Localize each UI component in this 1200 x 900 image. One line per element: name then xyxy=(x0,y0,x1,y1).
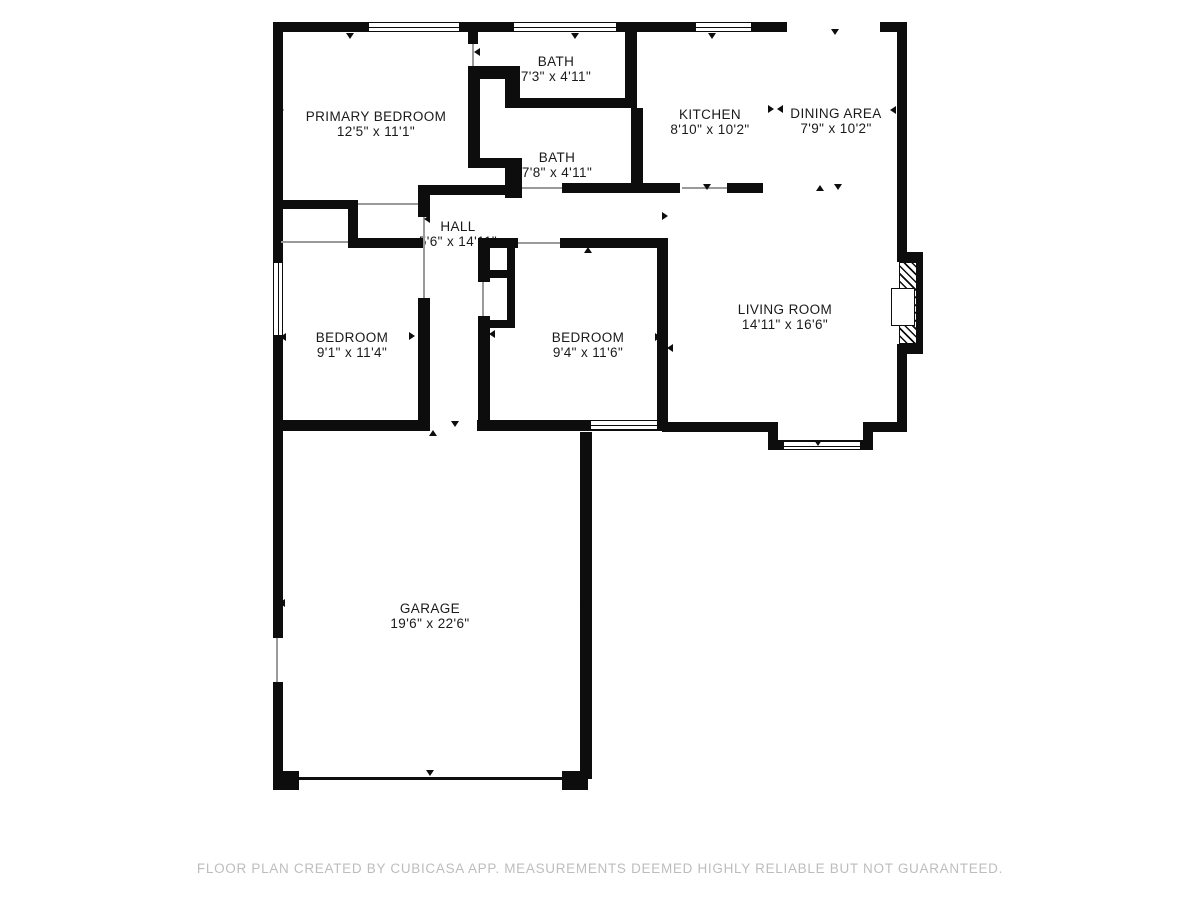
room-label-bath-top: BATH7'3" x 4'11" xyxy=(521,54,591,84)
room-label-bedroom-left: BEDROOM9'1" x 11'4" xyxy=(316,330,389,360)
room-label-kitchen: KITCHEN8'10" x 10'2" xyxy=(670,107,749,137)
door-direction-marker xyxy=(667,344,673,352)
wall-opening xyxy=(281,241,348,243)
window xyxy=(513,22,617,32)
wall xyxy=(560,238,667,248)
door-direction-marker xyxy=(630,48,636,56)
room-name: BATH xyxy=(538,54,575,69)
door-direction-marker xyxy=(814,440,822,446)
wall xyxy=(418,298,430,425)
room-label-garage: GARAGE19'6" x 22'6" xyxy=(390,601,469,631)
wall xyxy=(348,238,423,248)
wall xyxy=(507,238,515,328)
wall-opening xyxy=(482,282,484,316)
wall-opening xyxy=(358,203,418,205)
room-dimensions: 9'1" x 11'4" xyxy=(316,345,389,360)
room-name: PRIMARY BEDROOM xyxy=(306,109,447,124)
door-direction-marker xyxy=(831,29,839,35)
wall-opening xyxy=(423,217,425,298)
window xyxy=(368,22,460,32)
room-name: BEDROOM xyxy=(316,330,389,345)
wall xyxy=(478,320,515,328)
room-dimensions: 12'5" x 11'1" xyxy=(306,124,447,139)
room-name: KITCHEN xyxy=(679,107,741,122)
window xyxy=(783,441,861,450)
wall xyxy=(283,200,353,209)
wall xyxy=(477,420,592,431)
room-label-primary-bedroom: PRIMARY BEDROOM12'5" x 11'1" xyxy=(306,109,447,139)
room-label-bath: BATH7'8" x 4'11" xyxy=(522,150,592,180)
wall xyxy=(283,420,430,431)
wall xyxy=(468,32,478,44)
room-dimensions: 7'8" x 4'11" xyxy=(522,165,592,180)
door-direction-marker xyxy=(346,421,354,427)
room-name: LIVING ROOM xyxy=(738,302,832,317)
wall-opening xyxy=(518,242,560,244)
room-name: HALL xyxy=(440,219,475,234)
window xyxy=(695,22,752,32)
disclaimer-text: FLOOR PLAN CREATED BY CUBICASA APP. MEAS… xyxy=(0,861,1200,876)
room-dimensions: 9'4" x 11'6" xyxy=(552,345,625,360)
room-name: GARAGE xyxy=(400,601,460,616)
door-direction-marker xyxy=(474,48,480,56)
door-direction-marker xyxy=(662,212,668,220)
wall-opening xyxy=(522,187,562,189)
window xyxy=(273,262,283,336)
door-direction-marker xyxy=(426,770,434,776)
door-direction-marker xyxy=(580,599,586,607)
room-dimensions: 19'6" x 22'6" xyxy=(390,616,469,631)
door-direction-marker xyxy=(429,430,437,436)
door-direction-marker xyxy=(768,105,774,113)
floor-plan: PRIMARY BEDROOM12'5" x 11'1"BATH7'3" x 4… xyxy=(0,0,1200,900)
door-direction-marker xyxy=(584,247,592,253)
room-label-living-room: LIVING ROOM14'11" x 16'6" xyxy=(738,302,832,332)
door-direction-marker xyxy=(703,184,711,190)
door-direction-marker xyxy=(279,599,285,607)
wall xyxy=(273,682,283,777)
door-direction-marker xyxy=(834,184,842,190)
door-direction-marker xyxy=(816,185,824,191)
wall xyxy=(273,771,299,790)
door-direction-marker xyxy=(280,333,286,341)
wall xyxy=(727,183,763,193)
door-direction-marker xyxy=(451,421,459,427)
door-direction-marker xyxy=(708,33,716,39)
fireplace-icon xyxy=(891,288,915,326)
room-dimensions: 8'10" x 10'2" xyxy=(670,122,749,137)
window xyxy=(590,420,658,430)
wall xyxy=(863,422,873,450)
wall xyxy=(897,347,907,432)
door-direction-marker xyxy=(278,106,284,114)
wall xyxy=(897,22,907,262)
room-dimensions: 7'9" x 10'2" xyxy=(790,121,881,136)
wall xyxy=(625,32,637,108)
door-direction-marker xyxy=(346,33,354,39)
wall xyxy=(283,777,564,780)
wall xyxy=(768,422,778,450)
wall xyxy=(505,98,630,108)
room-name: BATH xyxy=(539,150,576,165)
room-label-dining-area: DINING AREA7'9" x 10'2" xyxy=(790,106,881,136)
room-label-bedroom-middle: BEDROOM9'4" x 11'6" xyxy=(552,330,625,360)
wall xyxy=(468,76,480,168)
door-direction-marker xyxy=(777,105,783,113)
door-direction-marker xyxy=(655,333,661,341)
wall-opening xyxy=(276,638,278,682)
room-dimensions: 7'3" x 4'11" xyxy=(521,69,591,84)
door-direction-marker xyxy=(424,215,430,223)
wall xyxy=(478,270,515,278)
room-name: DINING AREA xyxy=(790,106,881,121)
room-name: BEDROOM xyxy=(552,330,625,345)
door-direction-marker xyxy=(573,185,581,191)
wall xyxy=(873,422,907,432)
wall xyxy=(428,185,522,195)
door-direction-marker xyxy=(489,330,495,338)
door-direction-marker xyxy=(409,332,415,340)
door-direction-marker xyxy=(571,33,579,39)
door-direction-marker xyxy=(890,106,896,114)
room-dimensions: 14'11" x 16'6" xyxy=(738,317,832,332)
door-direction-marker xyxy=(632,146,638,154)
wall xyxy=(418,185,430,217)
wall xyxy=(662,422,778,432)
